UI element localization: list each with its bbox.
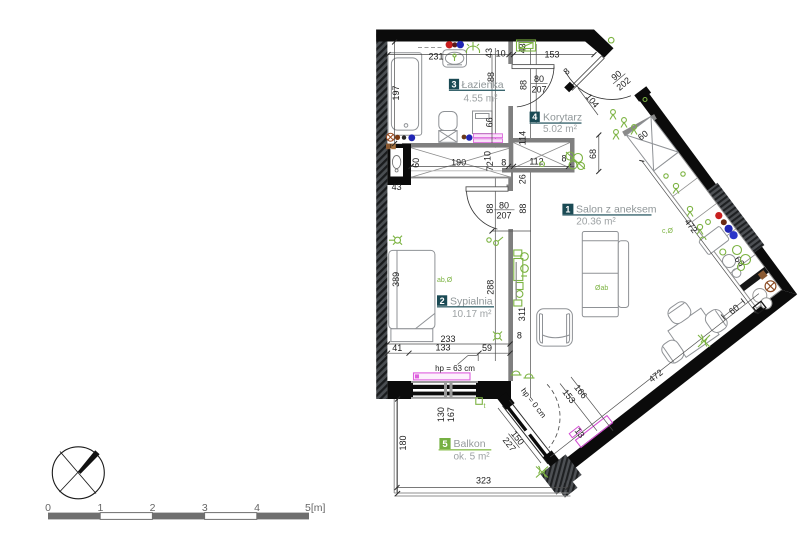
- svg-text:ab,Ø: ab,Ø: [437, 277, 453, 284]
- svg-text:5.02 m²: 5.02 m²: [543, 124, 578, 135]
- svg-text:4.55 m²: 4.55 m²: [464, 94, 499, 105]
- svg-text:8: 8: [501, 158, 506, 168]
- svg-text:Salon z aneksem: Salon z aneksem: [576, 204, 657, 216]
- svg-text:207: 207: [496, 211, 511, 221]
- svg-text:43: 43: [392, 182, 402, 192]
- svg-text:1: 1: [565, 204, 570, 214]
- svg-text:180: 180: [398, 435, 408, 450]
- svg-text:Øab: Øab: [595, 285, 608, 292]
- svg-text:10: 10: [496, 49, 506, 59]
- svg-text:114: 114: [518, 131, 528, 145]
- svg-text:88: 88: [485, 204, 495, 214]
- svg-text:68: 68: [588, 149, 598, 159]
- svg-text:20.36 m²: 20.36 m²: [576, 217, 616, 228]
- svg-text:231: 231: [428, 51, 443, 61]
- svg-text:130: 130: [436, 407, 446, 422]
- svg-text:c,Ø: c,Ø: [662, 228, 673, 235]
- svg-text:8: 8: [517, 331, 522, 341]
- svg-text:5: 5: [442, 439, 448, 450]
- svg-text:41: 41: [392, 343, 402, 353]
- svg-text:153: 153: [544, 50, 559, 60]
- svg-text:80: 80: [499, 200, 509, 210]
- svg-text:2: 2: [150, 502, 156, 514]
- svg-text:133: 133: [435, 343, 450, 353]
- svg-text:60: 60: [411, 158, 421, 168]
- svg-text:26: 26: [518, 174, 528, 184]
- svg-text:197: 197: [391, 85, 401, 100]
- svg-text:5[m]: 5[m]: [305, 502, 326, 514]
- svg-text:10: 10: [482, 151, 492, 161]
- svg-text:311: 311: [517, 307, 527, 321]
- svg-text:2: 2: [440, 296, 445, 306]
- svg-text:288: 288: [486, 280, 496, 295]
- svg-text:389: 389: [391, 272, 401, 287]
- svg-text:190: 190: [451, 157, 466, 167]
- svg-text:167: 167: [446, 407, 456, 422]
- svg-text:10.17 m²: 10.17 m²: [452, 309, 492, 320]
- svg-text:3: 3: [202, 502, 208, 514]
- svg-text:59: 59: [482, 343, 492, 353]
- svg-text:1: 1: [97, 502, 103, 514]
- svg-text:323: 323: [476, 476, 491, 486]
- svg-text:Korytarz: Korytarz: [543, 112, 582, 124]
- svg-text:3: 3: [451, 79, 456, 89]
- svg-text:207: 207: [531, 85, 546, 95]
- svg-text:4: 4: [254, 502, 260, 514]
- svg-text:43: 43: [484, 48, 494, 58]
- svg-text:66: 66: [484, 117, 494, 127]
- svg-text:hp = 63 cm: hp = 63 cm: [435, 364, 475, 373]
- svg-text:Balkon: Balkon: [454, 438, 486, 450]
- svg-text:0: 0: [45, 502, 51, 514]
- svg-text:4: 4: [532, 112, 537, 122]
- svg-text:88: 88: [518, 204, 528, 214]
- svg-text:80: 80: [534, 74, 544, 84]
- svg-text:88: 88: [519, 80, 529, 90]
- svg-text:72: 72: [485, 161, 495, 171]
- svg-text:Sypialnia: Sypialnia: [450, 295, 493, 307]
- svg-text:t: t: [484, 403, 486, 410]
- svg-text:Łazienka: Łazienka: [462, 79, 504, 91]
- svg-text:ok. 5 m²: ok. 5 m²: [454, 451, 491, 462]
